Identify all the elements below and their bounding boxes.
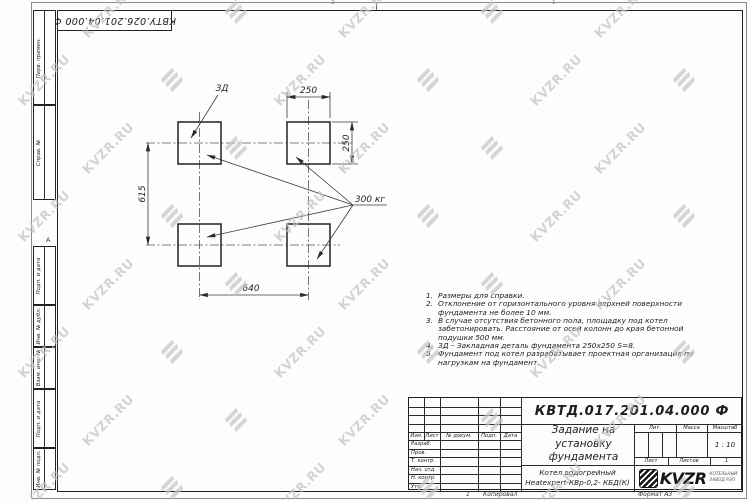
leader-load-4: [317, 205, 353, 259]
embed-label: ЗД: [216, 84, 229, 94]
leader-embed: [191, 95, 218, 138]
role-utv: Утв.: [409, 483, 440, 492]
col-data: Дата: [500, 432, 521, 440]
kvzr-logo-icon: [640, 470, 657, 487]
notes-list: 1.Размеры для справки.2.Отклонение от го…: [424, 292, 730, 367]
dim-640: 640: [242, 284, 259, 294]
sheets-value: 1: [710, 457, 743, 465]
kvzr-logo-subtext: КОТЕЛЬНЫЙ ЗАВОД РЭП: [709, 472, 737, 483]
role-t-kontr: Т. контр.: [409, 457, 440, 466]
load-label: 300 кг: [355, 195, 385, 205]
role-n-kontr: Н. контр.: [409, 474, 440, 483]
leader-load-3: [207, 205, 353, 237]
col-podp: Подп.: [478, 432, 500, 440]
logo-cell: KVZR КОТЕЛЬНЫЙ ЗАВОД РЭП: [634, 465, 743, 491]
leader-load-1: [207, 155, 353, 205]
document-designation: КВТД.017.201.04.000 Ф: [521, 398, 743, 424]
kvzr-logo-text: KVZR: [660, 469, 707, 488]
product-name: Котел водогрейный Heatexpert-КВр-0,2- КБ…: [521, 465, 634, 491]
copy-number: 1: [466, 491, 470, 498]
sheets-label: Листов: [668, 457, 710, 465]
mass-label: Масса: [676, 424, 707, 432]
note-line: нагрузкам на фундамент.: [424, 359, 730, 367]
format-label: Формат А3: [638, 491, 672, 498]
col-izm: Изм.: [409, 432, 424, 440]
col-doc-num: № докум.: [440, 432, 478, 440]
title-block: Изм. Лист № докум. Подп. Дата Разраб. Пр…: [408, 397, 742, 490]
drawing-sheet: 2 1 А КВТУ.026.201.04.000 Ф Перв. примен…: [0, 0, 750, 500]
dim-250-top: 250: [300, 86, 317, 96]
role-nach-otd: Нач. отд.: [409, 466, 440, 475]
scale-value: 1 : 10: [707, 432, 743, 457]
dim-250-right: 250: [342, 134, 352, 151]
scale-label: Масштаб: [707, 424, 743, 432]
dim-615: 615: [138, 185, 148, 202]
copied-label: Копировал: [483, 491, 517, 498]
role-prov: Пров.: [409, 449, 440, 458]
document-title: Задание на установку фундамента: [521, 424, 646, 465]
lit-label: Лит.: [634, 424, 676, 432]
col-list: Лист: [424, 432, 440, 440]
sheet-label: Лист: [634, 457, 668, 465]
role-razrab: Разраб.: [409, 440, 440, 449]
